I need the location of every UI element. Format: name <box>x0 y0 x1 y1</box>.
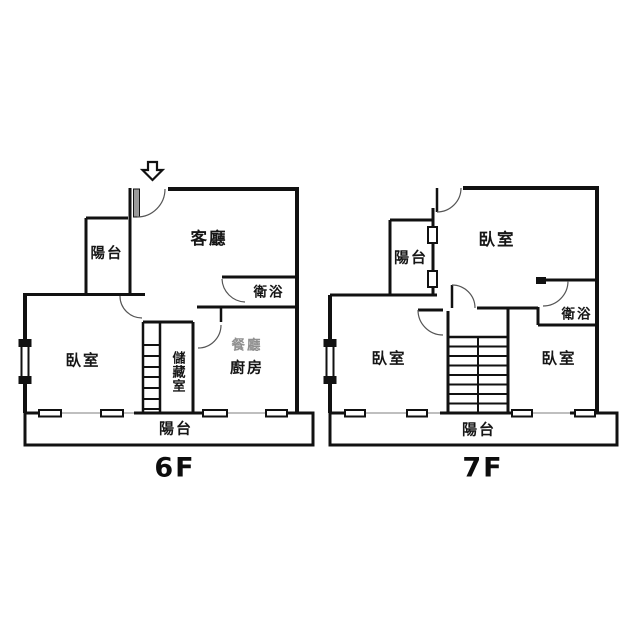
label-6f-balcony-bottom: 陽台 <box>159 422 193 437</box>
label-7f-balcony-top: 陽台 <box>394 251 428 266</box>
label-7f-bedroom-left: 臥室 <box>371 351 406 367</box>
floor-plan-canvas: 陽台 客廳 衛浴 臥室 儲藏室 餐廳 廚房 陽台 6F 陽台 臥室 衛浴 臥室 … <box>0 0 640 640</box>
label-7f-bathroom: 衛浴 <box>562 308 593 322</box>
7f-doors <box>418 188 568 335</box>
6f-plan <box>19 162 314 445</box>
label-6f-balcony-top: 陽台 <box>91 247 124 262</box>
label-7f-floor: 7F <box>462 455 503 482</box>
label-6f-bedroom: 臥室 <box>65 353 100 369</box>
label-6f-bathroom: 衛浴 <box>254 286 285 300</box>
label-7f-balcony-bottom: 陽台 <box>462 423 496 438</box>
label-6f-storage: 儲藏室 <box>171 351 184 393</box>
entry-door-panel <box>134 189 140 217</box>
label-6f-dining: 餐廳 <box>232 339 263 353</box>
label-6f-living-room: 客廳 <box>191 231 228 248</box>
7f-windows <box>324 227 596 417</box>
entrance-arrow-icon <box>143 162 163 180</box>
label-7f-bedroom-top: 臥室 <box>479 232 516 249</box>
floor-plan-drawing <box>0 0 640 640</box>
label-6f-kitchen: 廚房 <box>230 361 264 376</box>
6f-walls <box>25 187 313 445</box>
label-7f-bedroom-right: 臥室 <box>541 351 576 367</box>
7f-staircase <box>448 337 508 413</box>
6f-staircase <box>143 345 160 409</box>
label-6f-floor: 6F <box>154 455 195 482</box>
6f-doors <box>120 189 245 348</box>
